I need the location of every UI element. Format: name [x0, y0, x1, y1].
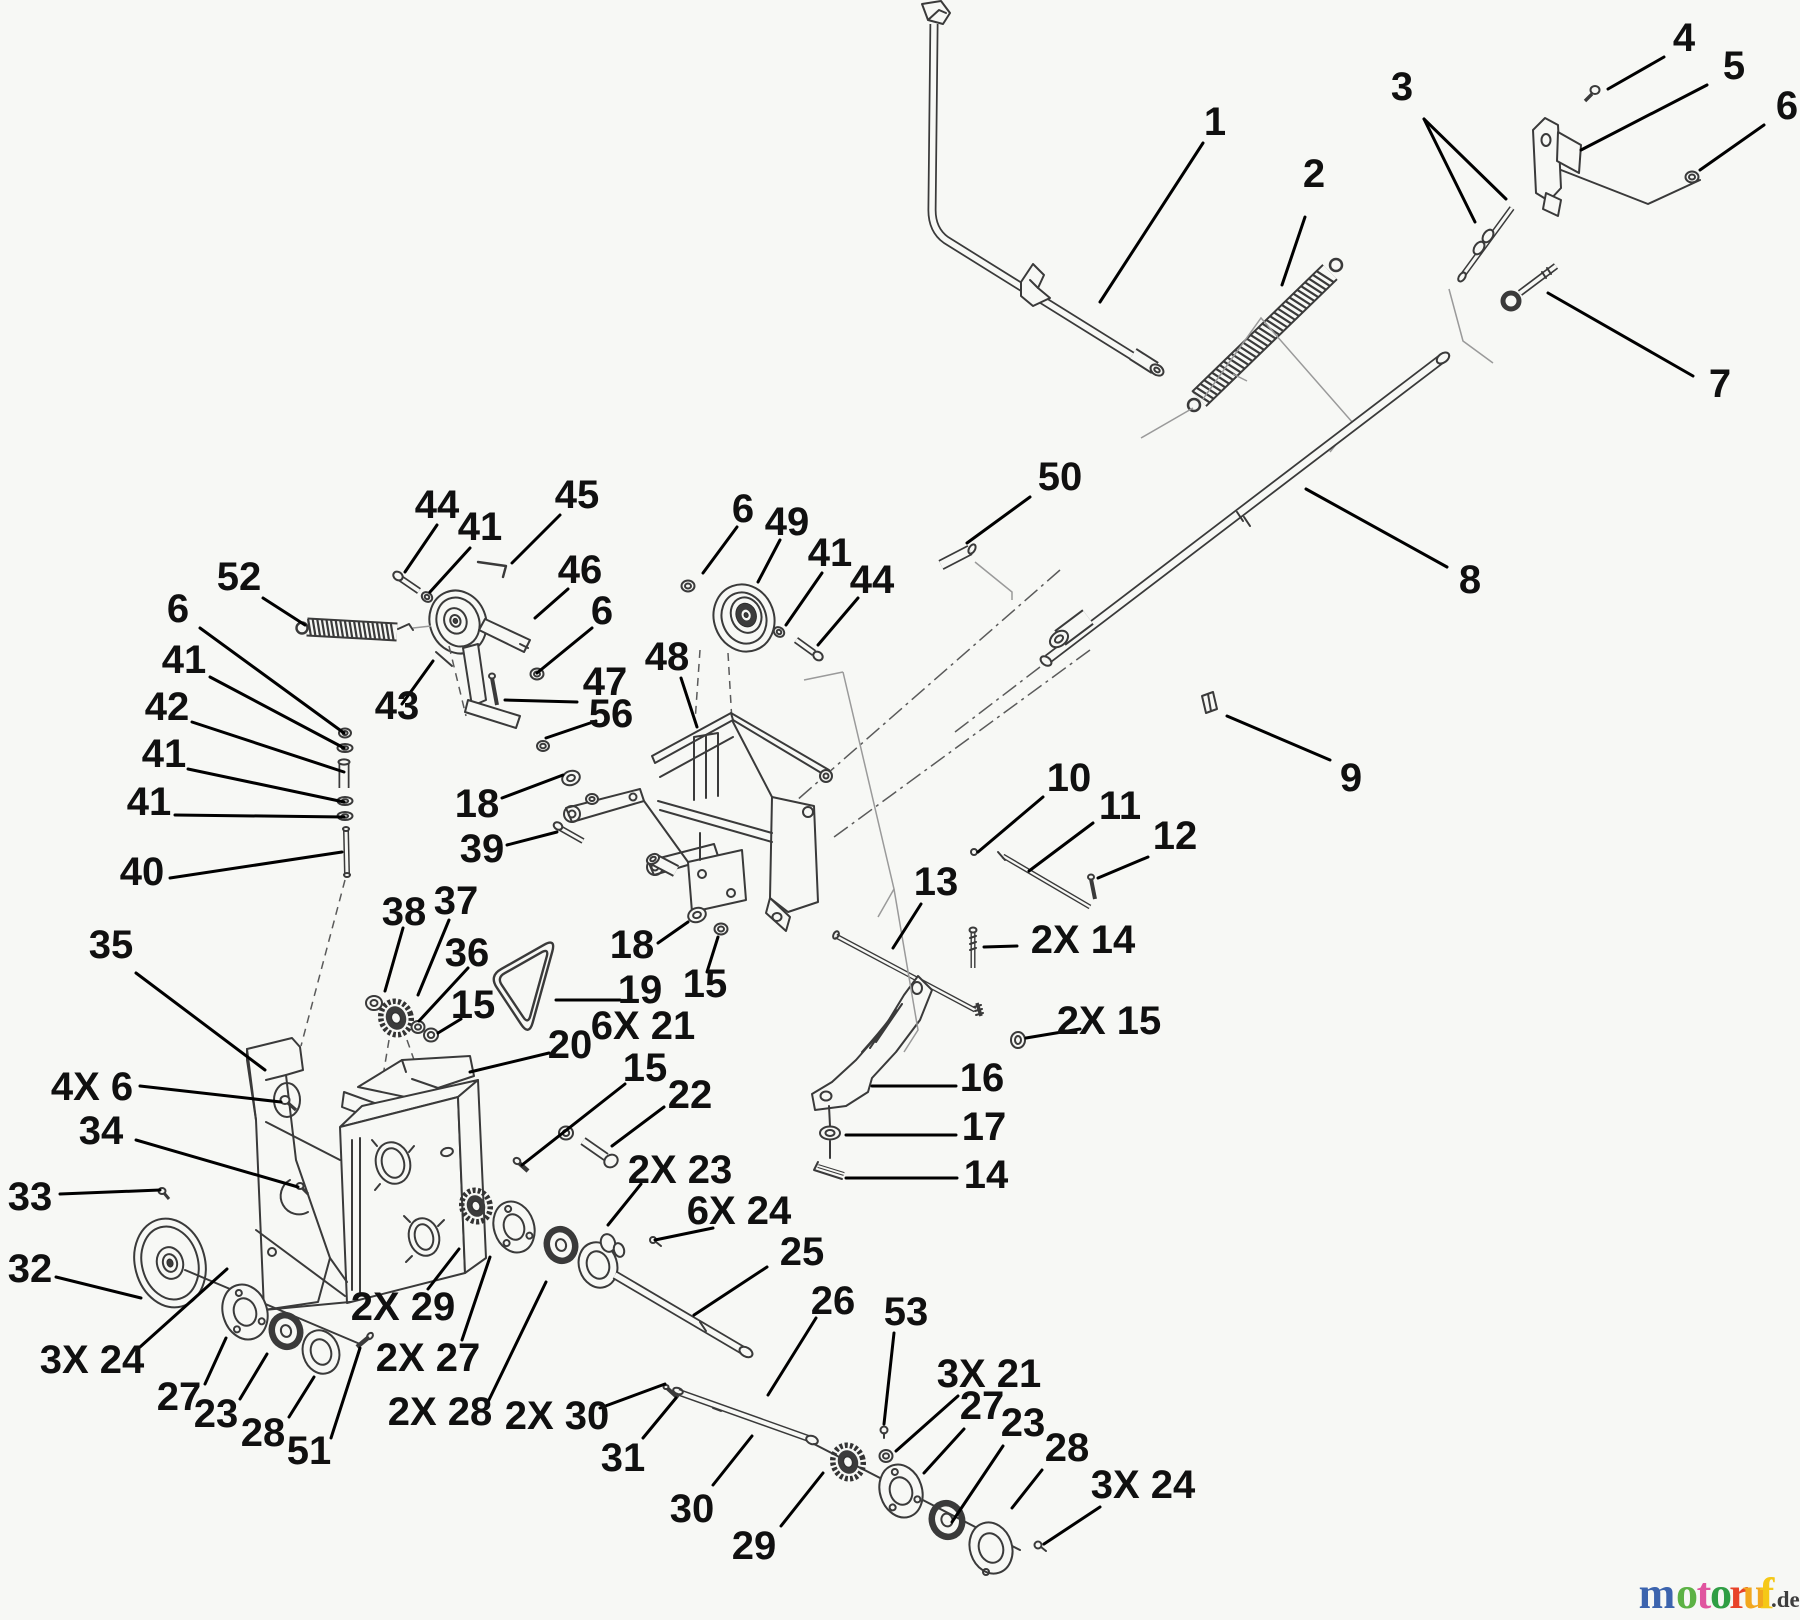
svg-text:6: 6: [732, 487, 754, 531]
svg-text:45: 45: [555, 473, 600, 517]
svg-text:4: 4: [1673, 16, 1696, 60]
svg-text:50: 50: [1038, 455, 1083, 499]
svg-text:5: 5: [1723, 44, 1745, 88]
svg-text:13: 13: [914, 860, 959, 904]
svg-text:3: 3: [1391, 65, 1413, 109]
svg-text:43: 43: [375, 684, 420, 728]
svg-text:41: 41: [808, 531, 853, 575]
svg-text:28: 28: [241, 1411, 286, 1455]
svg-text:44: 44: [850, 558, 895, 602]
svg-text:2X 23: 2X 23: [628, 1148, 733, 1192]
svg-text:36: 36: [445, 931, 490, 975]
svg-text:1: 1: [1204, 100, 1226, 144]
svg-text:4X 6: 4X 6: [51, 1065, 133, 1109]
svg-text:33: 33: [8, 1175, 53, 1219]
svg-text:15: 15: [683, 962, 728, 1006]
svg-text:41: 41: [142, 732, 187, 776]
svg-text:42: 42: [145, 685, 190, 729]
svg-text:2X 14: 2X 14: [1031, 918, 1136, 962]
svg-text:7: 7: [1709, 362, 1731, 406]
svg-text:52: 52: [217, 555, 262, 599]
svg-text:48: 48: [645, 635, 690, 679]
svg-text:53: 53: [884, 1290, 929, 1334]
svg-text:17: 17: [962, 1105, 1007, 1149]
svg-text:2X 30: 2X 30: [505, 1394, 610, 1438]
svg-text:46: 46: [558, 548, 603, 592]
svg-text:39: 39: [460, 827, 505, 871]
svg-text:49: 49: [765, 500, 810, 544]
svg-text:41: 41: [127, 780, 172, 824]
svg-text:18: 18: [455, 782, 500, 826]
svg-text:32: 32: [8, 1247, 53, 1291]
svg-text:51: 51: [287, 1429, 332, 1473]
svg-text:34: 34: [79, 1109, 124, 1153]
svg-text:9: 9: [1340, 756, 1362, 800]
svg-text:37: 37: [434, 879, 479, 923]
svg-text:40: 40: [120, 850, 165, 894]
svg-text:2X 28: 2X 28: [388, 1390, 493, 1434]
svg-text:3X 24: 3X 24: [40, 1338, 145, 1382]
svg-text:6X 21: 6X 21: [591, 1004, 696, 1048]
svg-text:31: 31: [601, 1436, 646, 1480]
svg-text:6X 24: 6X 24: [687, 1189, 792, 1233]
svg-text:56: 56: [589, 692, 634, 736]
svg-text:2: 2: [1303, 152, 1325, 196]
svg-text:28: 28: [1045, 1426, 1090, 1470]
svg-text:15: 15: [623, 1046, 668, 1090]
svg-text:20: 20: [548, 1023, 593, 1067]
svg-text:41: 41: [458, 505, 503, 549]
svg-text:16: 16: [960, 1056, 1005, 1100]
svg-text:26: 26: [811, 1279, 856, 1323]
svg-text:12: 12: [1153, 814, 1198, 858]
svg-text:44: 44: [415, 483, 460, 527]
svg-text:23: 23: [1001, 1401, 1046, 1445]
svg-text:30: 30: [670, 1487, 715, 1531]
svg-text:14: 14: [964, 1153, 1009, 1197]
svg-text:o: o: [1676, 1569, 1698, 1618]
svg-text:3X 24: 3X 24: [1091, 1463, 1196, 1507]
svg-text:10: 10: [1047, 756, 1092, 800]
svg-text:2X 29: 2X 29: [351, 1285, 456, 1329]
svg-text:25: 25: [780, 1230, 825, 1274]
svg-text:15: 15: [451, 983, 496, 1027]
svg-text:23: 23: [194, 1392, 239, 1436]
svg-text:.de: .de: [1771, 1587, 1800, 1612]
svg-text:m: m: [1639, 1569, 1676, 1618]
svg-text:6: 6: [1776, 84, 1798, 128]
svg-text:2X 27: 2X 27: [376, 1336, 481, 1380]
svg-text:41: 41: [162, 638, 207, 682]
svg-text:6: 6: [167, 587, 189, 631]
svg-text:11: 11: [1099, 784, 1141, 828]
svg-text:29: 29: [732, 1524, 777, 1568]
svg-text:35: 35: [89, 923, 134, 967]
svg-text:8: 8: [1459, 558, 1481, 602]
svg-text:22: 22: [668, 1073, 713, 1117]
svg-text:38: 38: [382, 890, 427, 934]
svg-text:6: 6: [591, 589, 613, 633]
svg-text:27: 27: [960, 1384, 1005, 1428]
svg-text:18: 18: [610, 923, 655, 967]
svg-text:2X 15: 2X 15: [1057, 999, 1162, 1043]
